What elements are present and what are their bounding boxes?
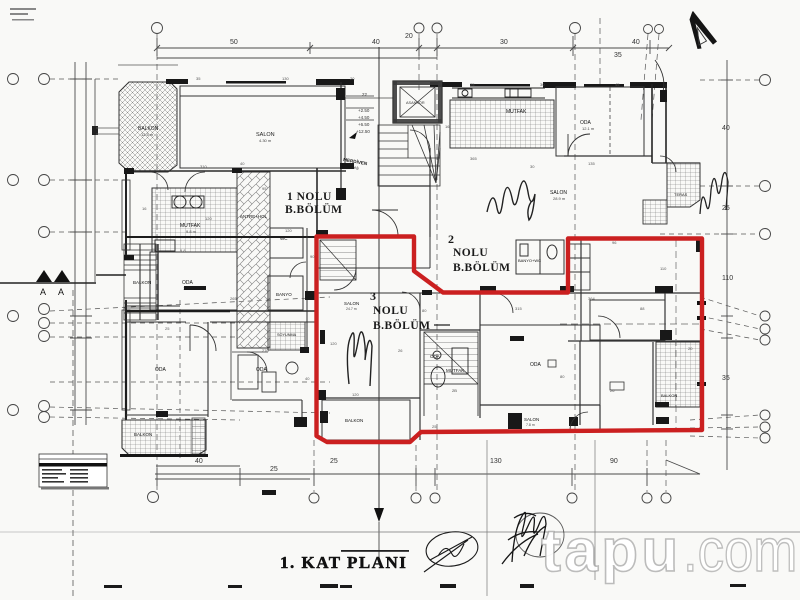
svg-text:135: 135 [588, 161, 595, 166]
svg-text:BANYO: BANYO [276, 292, 292, 297]
svg-text:88: 88 [640, 306, 645, 311]
svg-text:tapu: tapu [541, 517, 682, 584]
svg-text:SALON: SALON [344, 301, 359, 306]
svg-text:25: 25 [330, 458, 338, 465]
svg-text:130: 130 [490, 458, 502, 465]
svg-text:25: 25 [432, 424, 437, 429]
svg-text:9.8: 9.8 [180, 248, 186, 253]
svg-text:96: 96 [612, 240, 617, 245]
svg-text:ODA: ODA [155, 367, 167, 373]
svg-text:B.BÖLÜM: B.BÖLÜM [373, 318, 431, 332]
svg-text:25: 25 [270, 466, 278, 473]
svg-text:35: 35 [614, 52, 622, 59]
svg-text:24.7 m: 24.7 m [346, 307, 357, 311]
svg-text:95: 95 [262, 186, 267, 191]
svg-text:ASANSÖR: ASANSÖR [406, 101, 425, 105]
svg-text:1 NOLU: 1 NOLU [287, 191, 332, 203]
svg-text:40: 40 [632, 39, 640, 46]
svg-text:120: 120 [205, 216, 212, 221]
svg-text:NOLU: NOLU [453, 247, 488, 259]
svg-text:310: 310 [200, 164, 207, 169]
svg-text:30: 30 [540, 82, 545, 87]
svg-text:80: 80 [422, 308, 427, 313]
svg-text:16: 16 [142, 206, 147, 211]
svg-text:2B: 2B [452, 388, 457, 393]
svg-text:40: 40 [372, 39, 380, 46]
svg-text:130: 130 [282, 76, 289, 81]
svg-text:110: 110 [660, 266, 667, 271]
svg-text:365: 365 [470, 156, 477, 161]
svg-text:ODA: ODA [530, 362, 542, 368]
svg-text:3: 3 [370, 289, 376, 303]
svg-text:A: A [58, 287, 64, 297]
svg-text:BALKON: BALKON [133, 280, 151, 285]
svg-text:30: 30 [530, 164, 535, 169]
svg-text:7.8 m: 7.8 m [526, 423, 535, 427]
svg-text:30: 30 [500, 39, 508, 46]
svg-text:40: 40 [305, 376, 310, 381]
svg-text:BANYO+WC: BANYO+WC [518, 258, 541, 263]
svg-text:B.BÖLÜM: B.BÖLÜM [285, 202, 343, 216]
svg-text:80: 80 [560, 374, 565, 379]
svg-text:120: 120 [352, 392, 359, 397]
svg-text:+4.50: +4.50 [358, 115, 370, 120]
svg-text:B.BÖLÜM: B.BÖLÜM [453, 260, 511, 274]
svg-text:MUTFAK: MUTFAK [506, 109, 527, 115]
svg-text:2: 2 [448, 232, 454, 246]
svg-text:.com: .com [683, 517, 797, 584]
svg-text:90: 90 [610, 458, 618, 465]
svg-text:SALON: SALON [524, 417, 539, 422]
svg-text:25: 25 [165, 326, 170, 331]
svg-text:BALKON: BALKON [345, 418, 363, 423]
svg-text:40: 40 [240, 161, 245, 166]
svg-text:4.30 m: 4.30 m [259, 138, 272, 143]
svg-text:25: 25 [470, 82, 475, 87]
svg-text:BALKON: BALKON [661, 393, 677, 398]
svg-text:26: 26 [398, 348, 403, 353]
svg-text:26: 26 [610, 388, 615, 393]
svg-text:12.1 m: 12.1 m [582, 126, 595, 131]
svg-text:265: 265 [230, 296, 237, 301]
svg-text:MUTFAK: MUTFAK [446, 368, 464, 373]
svg-text:20: 20 [688, 346, 693, 351]
svg-text:270: 270 [262, 348, 269, 353]
svg-text:20: 20 [350, 76, 355, 81]
svg-text:1. KAT PLANI: 1. KAT PLANI [280, 553, 407, 572]
svg-text:120: 120 [285, 228, 292, 233]
svg-text:35: 35 [722, 375, 730, 382]
svg-text:120: 120 [330, 341, 337, 346]
svg-text:28.9 m: 28.9 m [553, 196, 566, 201]
svg-text:45: 45 [615, 82, 620, 87]
svg-text:TERAS: TERAS [674, 192, 688, 197]
svg-text:16: 16 [445, 124, 450, 129]
svg-text:ANTRE+HOL: ANTRE+HOL [240, 214, 268, 219]
svg-text:+6.50: +6.50 [358, 122, 370, 127]
svg-text:+2.50: +2.50 [358, 108, 370, 113]
svg-text:SOYUNMA: SOYUNMA [277, 333, 297, 337]
svg-text:BALKON: BALKON [134, 432, 152, 437]
svg-text:35: 35 [196, 76, 201, 81]
svg-text:A: A [40, 287, 46, 297]
svg-text:315: 315 [515, 306, 522, 311]
svg-text:NOLU: NOLU [373, 305, 408, 317]
svg-text:40: 40 [722, 125, 730, 132]
svg-text:12.5 m: 12.5 m [141, 132, 154, 137]
svg-text:110: 110 [722, 275, 733, 282]
svg-text:50: 50 [230, 39, 238, 46]
svg-text:20: 20 [405, 33, 413, 40]
svg-text:40: 40 [195, 458, 203, 465]
svg-text:+12.50: +12.50 [356, 129, 370, 134]
svg-text:9.8 m: 9.8 m [186, 229, 197, 234]
svg-text:364: 364 [588, 296, 595, 301]
svg-text:ODA: ODA [430, 354, 440, 359]
